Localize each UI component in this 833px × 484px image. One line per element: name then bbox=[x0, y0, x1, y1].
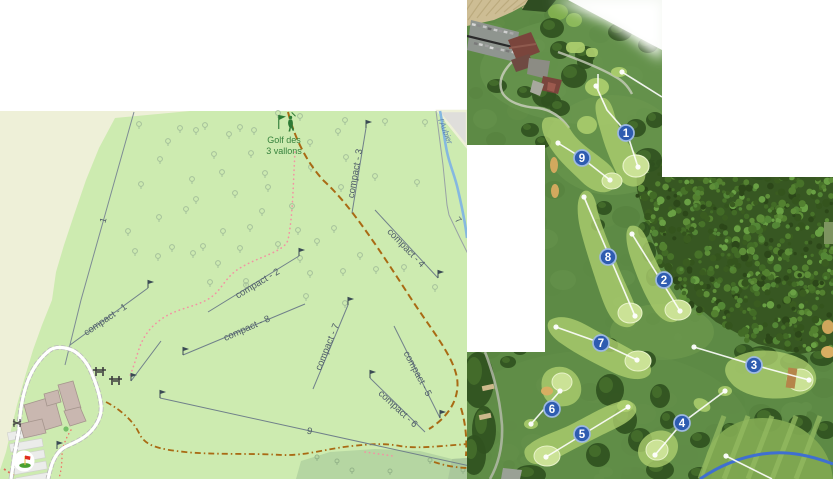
svg-text:5: 5 bbox=[579, 429, 586, 441]
svg-text:1: 1 bbox=[623, 128, 630, 140]
svg-text:3 vallons: 3 vallons bbox=[266, 146, 302, 156]
svg-text:2: 2 bbox=[661, 275, 667, 287]
svg-text:9: 9 bbox=[579, 153, 585, 165]
svg-text:8: 8 bbox=[605, 252, 612, 264]
svg-text:3: 3 bbox=[751, 360, 757, 372]
svg-text:Golf des: Golf des bbox=[267, 135, 301, 145]
svg-text:7: 7 bbox=[598, 338, 604, 350]
svg-text:4: 4 bbox=[679, 418, 686, 430]
svg-text:6: 6 bbox=[549, 404, 555, 416]
